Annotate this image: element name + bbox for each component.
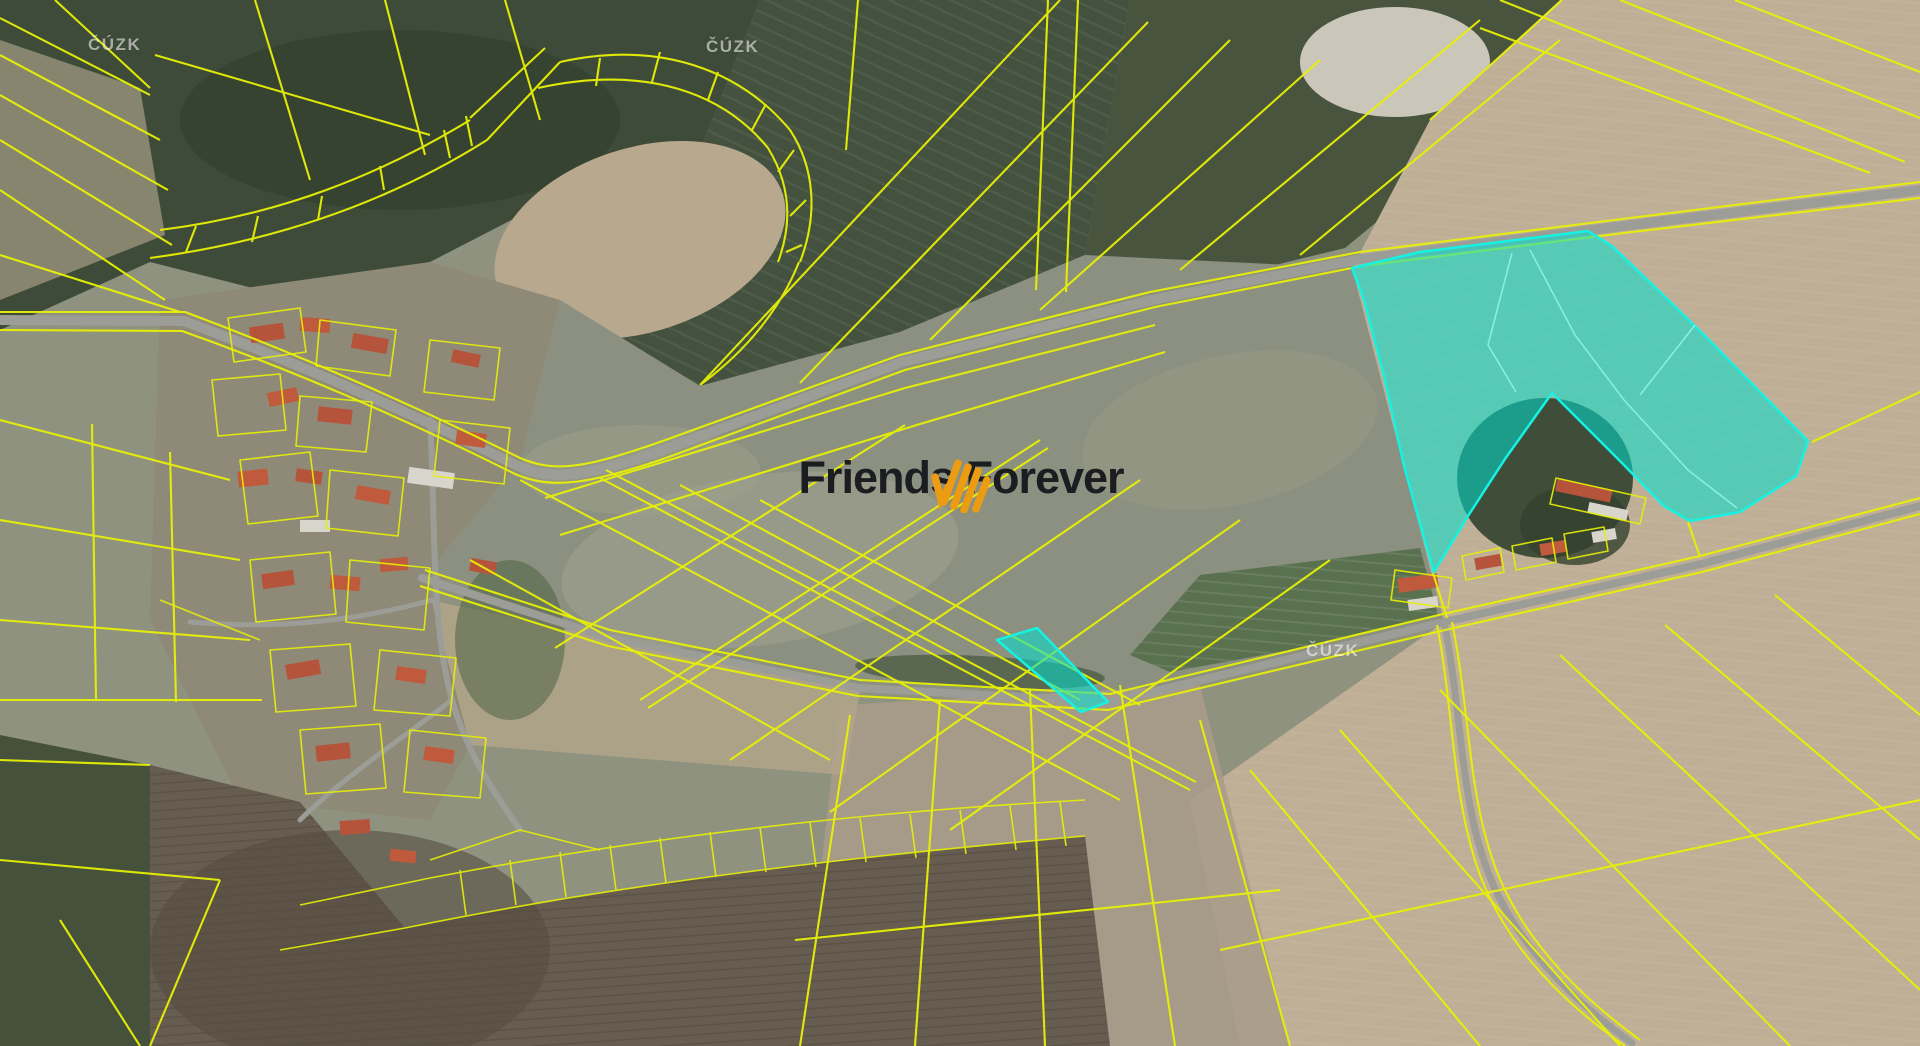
cuzk-watermark: ČÚZK: [88, 36, 141, 53]
cadastral-map[interactable]: ČÚZK ČÚZK ČÚZK Friends Forever: [0, 0, 1920, 1046]
map-canvas: [0, 0, 1920, 1046]
brand-watermark: Friends Forever: [791, 455, 1131, 500]
cuzk-watermark: ČÚZK: [706, 38, 759, 55]
brand-logo-icon: [929, 455, 993, 513]
cuzk-watermark: ČÚZK: [1306, 642, 1359, 659]
